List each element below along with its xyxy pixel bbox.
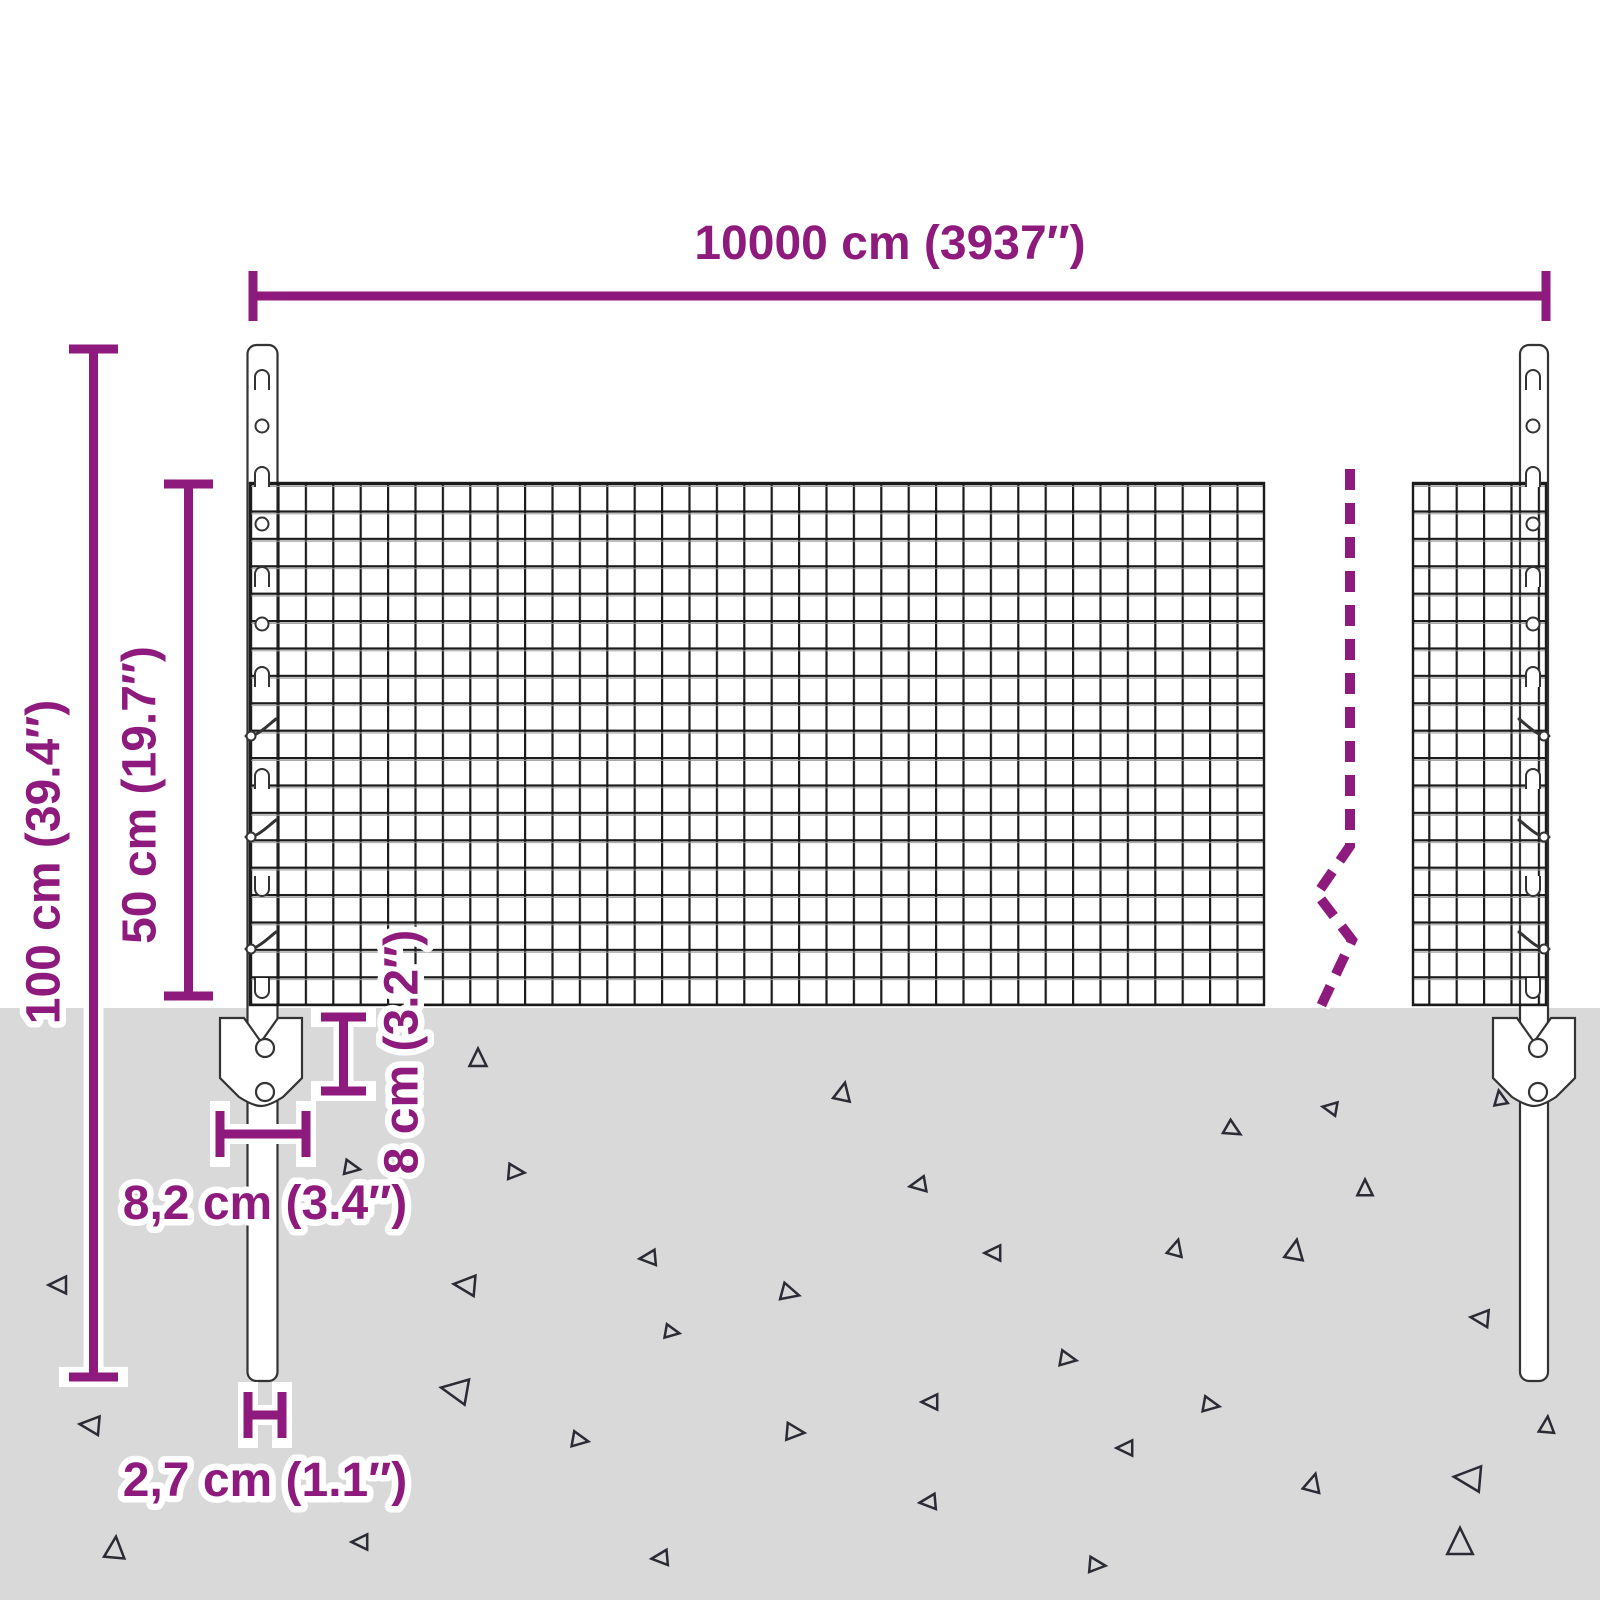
hook-slot [255, 467, 269, 487]
post-width-label: 2,7 cm (1.1″) [123, 1454, 407, 1507]
hook-slot [1526, 467, 1540, 487]
diagram-canvas: 10000 cm (3937″) 100 cm (39.4″) 50 cm (1… [0, 0, 1600, 1600]
hook-slot [1526, 567, 1540, 587]
hook-slot [255, 769, 269, 789]
post-hole [1527, 518, 1540, 531]
fence-mesh-right [1413, 483, 1546, 1005]
fence-dimension-diagram: 10000 cm (3937″) 100 cm (39.4″) 50 cm (1… [0, 0, 1600, 1600]
anchor-depth-label: 8 cm (3.2″) [376, 930, 429, 1174]
break-line-dashes [1317, 469, 1352, 1006]
anchor-width-label: 8,2 cm (3.4″) [123, 1177, 407, 1230]
fence-mesh-main [250, 483, 1264, 1005]
hook-slot [255, 876, 269, 896]
post-hole [256, 618, 269, 631]
post-hole [1527, 618, 1540, 631]
hook-slot [1526, 667, 1540, 687]
post-height-label: 100 cm (39.4″) [18, 700, 71, 1025]
dimension-mesh-height-line [164, 484, 213, 996]
break-line [1317, 469, 1352, 1006]
post-hole [256, 420, 269, 433]
hook-slot [255, 370, 269, 390]
hook-slot [255, 667, 269, 687]
dimension-total-width-line [253, 271, 1546, 321]
mesh-height-label: 50 cm (19.7″) [114, 646, 167, 944]
post-hole [256, 518, 269, 531]
hook-slot [1526, 769, 1540, 789]
total-width-label: 10000 cm (3937″) [694, 217, 1085, 270]
hook-slot [1526, 876, 1540, 896]
hook-slot [255, 567, 269, 587]
hook-slot [1526, 978, 1540, 998]
post-hole [1527, 420, 1540, 433]
hook-slot [255, 978, 269, 998]
hook-slot [1526, 370, 1540, 390]
